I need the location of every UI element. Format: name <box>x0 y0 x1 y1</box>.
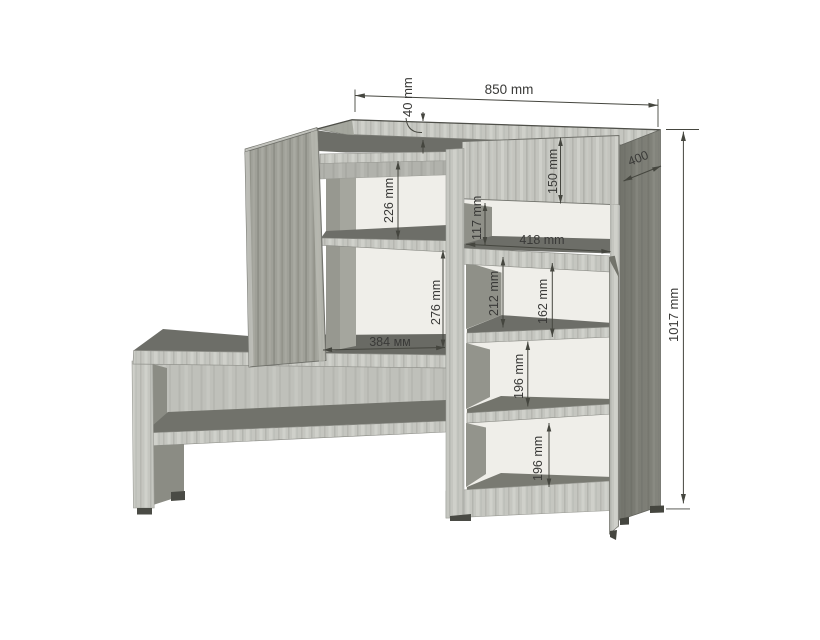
svg-text:117 mm: 117 mm <box>470 196 484 240</box>
svg-text:150 mm: 150 mm <box>546 149 560 194</box>
svg-text:226 mm: 226 mm <box>382 178 396 223</box>
svg-text:212 mm: 212 mm <box>487 271 501 316</box>
svg-text:1017 mm: 1017 mm <box>666 288 681 342</box>
svg-text:196 mm: 196 mm <box>531 436 545 481</box>
svg-text:162 mm: 162 mm <box>536 279 550 324</box>
svg-text:196 mm: 196 mm <box>512 354 526 399</box>
svg-text:40 mm: 40 mm <box>400 77 415 117</box>
svg-text:418 mm: 418 mm <box>519 233 564 247</box>
svg-text:850 mm: 850 mm <box>485 82 534 97</box>
svg-text:276 mm: 276 mm <box>429 280 443 325</box>
svg-text:384 мм: 384 мм <box>369 335 411 349</box>
